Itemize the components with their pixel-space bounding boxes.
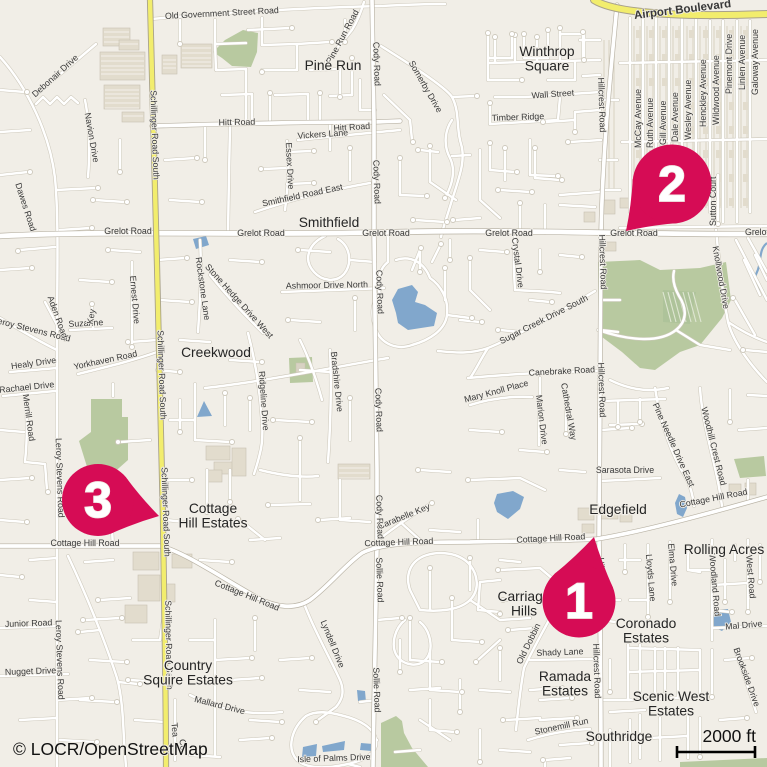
svg-text:Cody Road: Cody Road — [371, 160, 383, 204]
svg-text:Wesley Avenue: Wesley Avenue — [683, 80, 693, 140]
svg-text:McCay Avenue: McCay Avenue — [633, 89, 643, 148]
svg-text:Pinemont Drive: Pinemont Drive — [724, 34, 734, 94]
svg-text:Scenic West: Scenic West — [633, 689, 710, 704]
svg-text:Cody Road: Cody Road — [374, 495, 386, 539]
svg-text:Grelot Road: Grelot Road — [362, 228, 410, 238]
svg-text:Estates: Estates — [542, 684, 588, 699]
svg-text:Henckley Avenue: Henckley Avenue — [698, 59, 708, 127]
svg-text:Gill Avenue: Gill Avenue — [658, 101, 668, 145]
svg-text:Hillcrest Road: Hillcrest Road — [597, 234, 609, 289]
svg-text:Hills: Hills — [511, 604, 537, 619]
svg-text:Nugget Drive: Nugget Drive — [5, 665, 57, 677]
svg-text:Coronado: Coronado — [616, 616, 677, 631]
svg-text:Wildwood Avenue: Wildwood Avenue — [711, 55, 721, 125]
svg-text:Cottage Hill Road: Cottage Hill Road — [51, 538, 120, 548]
svg-text:Tea: Tea — [169, 722, 180, 737]
svg-text:Grelot Road: Grelot Road — [485, 228, 533, 238]
svg-text:2000 ft: 2000 ft — [702, 726, 756, 746]
svg-text:Hitt Road: Hitt Road — [219, 117, 256, 128]
svg-text:Sollie Road: Sollie Road — [371, 667, 383, 712]
svg-text:Sollie Road: Sollie Road — [374, 557, 386, 602]
svg-text:Linlen Avenue: Linlen Avenue — [737, 35, 747, 90]
svg-text:Edgefield: Edgefield — [589, 502, 647, 517]
svg-text:1: 1 — [565, 573, 593, 629]
svg-text:Cottage: Cottage — [189, 501, 238, 516]
svg-text:Southridge: Southridge — [586, 729, 653, 744]
svg-text:Grelot Road: Grelot Road — [610, 228, 658, 238]
svg-text:Winthrop: Winthrop — [519, 44, 575, 59]
svg-text:Rolling Acres: Rolling Acres — [684, 542, 765, 557]
svg-text:Timber Ridge: Timber Ridge — [491, 111, 544, 123]
svg-text:3: 3 — [84, 472, 112, 528]
svg-text:Ruth Avenue: Ruth Avenue — [645, 98, 655, 148]
svg-text:Cody Road: Cody Road — [371, 42, 383, 86]
svg-text:Estates: Estates — [623, 631, 669, 646]
svg-text:Hill Estates: Hill Estates — [178, 516, 247, 531]
svg-text:Cody Road: Cody Road — [374, 270, 386, 314]
svg-text:Grelot Road: Grelot Road — [104, 226, 152, 236]
svg-text:Cody Road: Cody Road — [373, 388, 385, 432]
svg-text:Squire Estates: Squire Estates — [143, 673, 233, 688]
svg-text:2: 2 — [658, 156, 686, 212]
svg-text:Hillcrest Road: Hillcrest Road — [591, 643, 603, 698]
svg-text:Galoway Avenue: Galoway Avenue — [750, 29, 760, 95]
svg-text:Grelot: Grelot — [745, 227, 767, 237]
svg-text:© LOCR/OpenStreetMap: © LOCR/OpenStreetMap — [13, 739, 208, 759]
svg-text:Country: Country — [164, 658, 212, 673]
svg-text:Square: Square — [525, 59, 570, 74]
svg-text:Estates: Estates — [648, 704, 694, 719]
svg-text:Sarasota Drive: Sarasota Drive — [596, 465, 654, 475]
svg-text:Pine Run: Pine Run — [305, 58, 362, 73]
svg-text:Smithfield: Smithfield — [299, 215, 360, 230]
svg-text:Creekwood: Creekwood — [181, 345, 251, 360]
svg-text:Ramada: Ramada — [539, 669, 591, 684]
svg-text:Junior Road: Junior Road — [5, 617, 53, 629]
svg-text:Ashmoor Drive North: Ashmoor Drive North — [286, 279, 368, 290]
svg-text:Grelot Road: Grelot Road — [237, 228, 285, 238]
svg-text:Shady Lane: Shady Lane — [536, 646, 583, 658]
svg-text:Dale Avenue: Dale Avenue — [670, 92, 680, 142]
svg-text:Hillcrest Road: Hillcrest Road — [596, 362, 608, 417]
svg-text:Hillcrest Road: Hillcrest Road — [596, 77, 608, 132]
